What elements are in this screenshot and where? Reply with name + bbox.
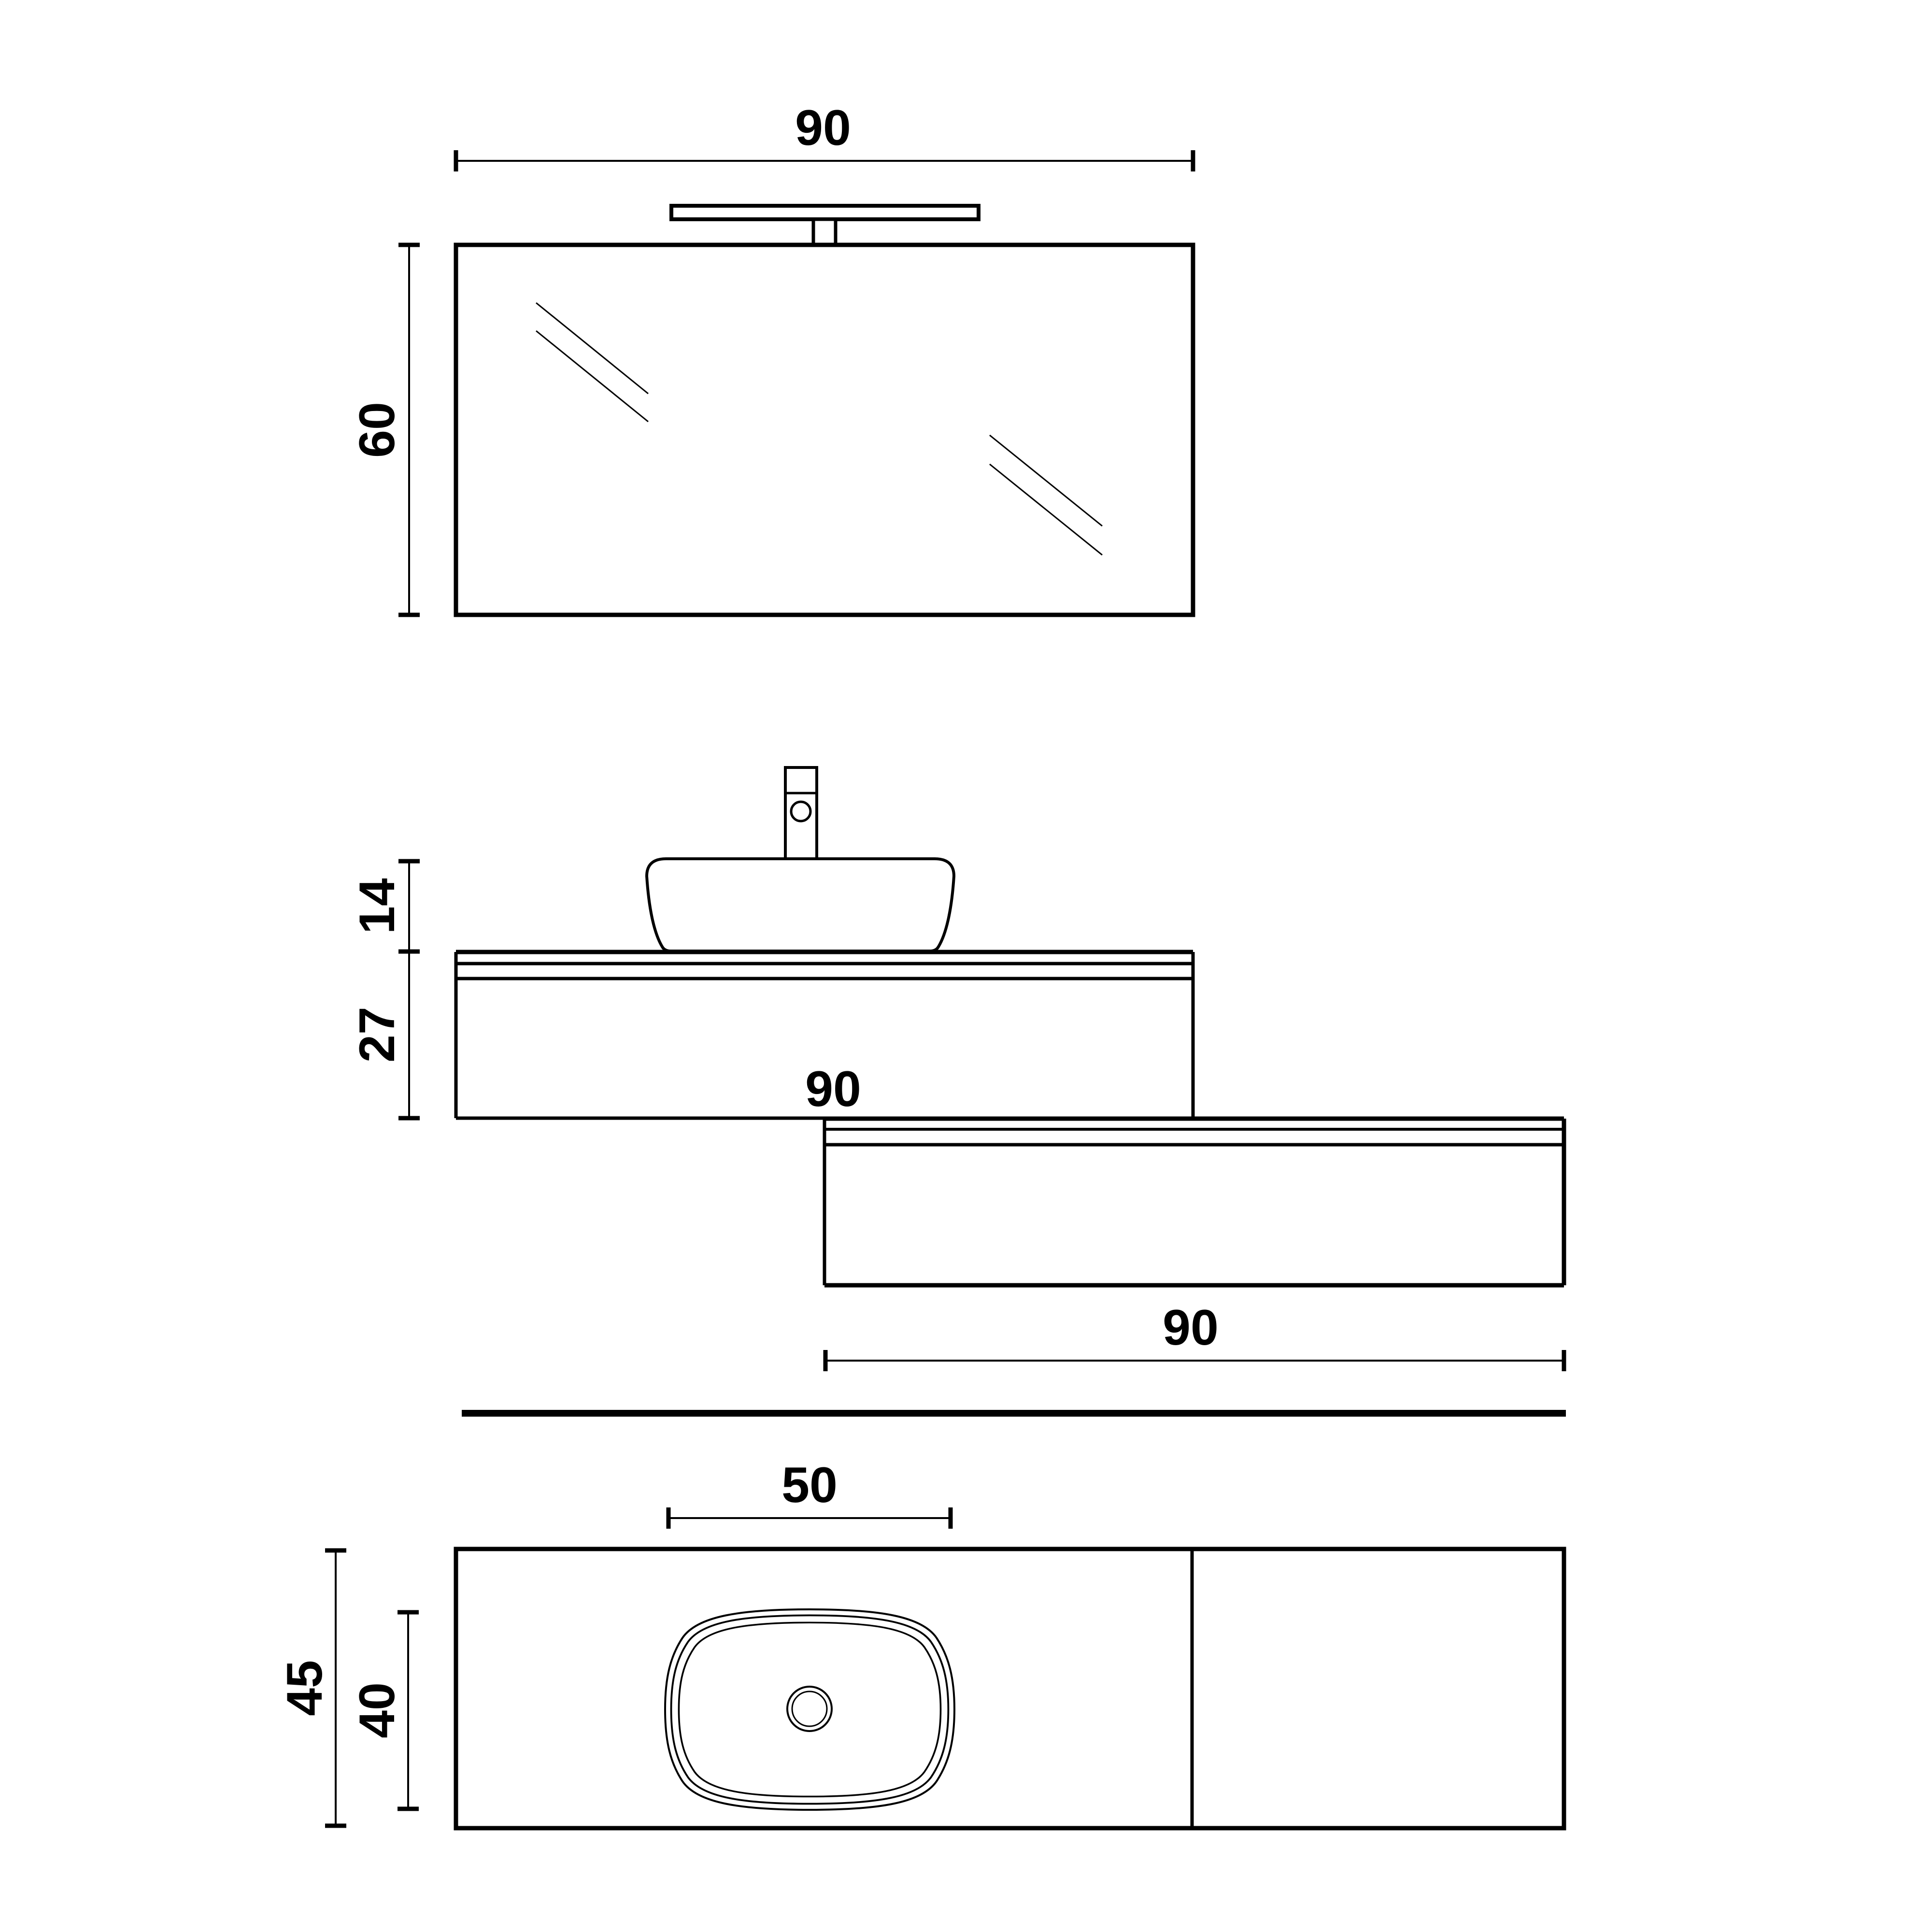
plan-view: 50 45 40 <box>277 1457 1564 1828</box>
dimension-label: 90 <box>1163 1300 1219 1356</box>
dimension-label: 14 <box>349 878 405 934</box>
right-unit-width-tag: 90 <box>805 1061 861 1117</box>
mirror-view: 90 60 <box>349 100 1193 615</box>
vanity-elevation-view: 14 27 90 90 <box>349 767 1564 1371</box>
dimension-label: 45 <box>277 1660 333 1716</box>
basin-depth-dimension: 40 <box>349 1612 419 1809</box>
mirror-outline <box>456 245 1193 615</box>
vanity-technical-drawing: 90 60 <box>0 0 1932 1932</box>
basin-width-dimension: 50 <box>668 1457 951 1529</box>
right-vanity-unit <box>824 1119 1564 1285</box>
cabinet-height-dimension: 27 <box>349 952 420 1118</box>
light-fixture <box>671 206 979 246</box>
right-unit-width-dimension: 90 <box>825 1300 1564 1371</box>
mirror-width-dimension: 90 <box>456 100 1193 171</box>
dimension-label: 27 <box>349 1007 405 1063</box>
basin-height-dimension: 14 <box>349 861 420 952</box>
faucet-body <box>785 767 817 859</box>
light-bar <box>671 206 979 219</box>
dimension-label: 50 <box>781 1457 838 1513</box>
mirror-height-dimension: 60 <box>349 245 420 615</box>
vessel-basin <box>647 859 954 951</box>
faucet <box>785 767 817 859</box>
total-depth-dimension: 45 <box>277 1550 346 1826</box>
dimension-label: 60 <box>349 402 405 458</box>
light-stem <box>813 219 836 246</box>
countertop-plan-outline <box>456 1549 1564 1828</box>
dimension-label: 90 <box>795 100 851 156</box>
dimension-label: 40 <box>349 1682 405 1738</box>
